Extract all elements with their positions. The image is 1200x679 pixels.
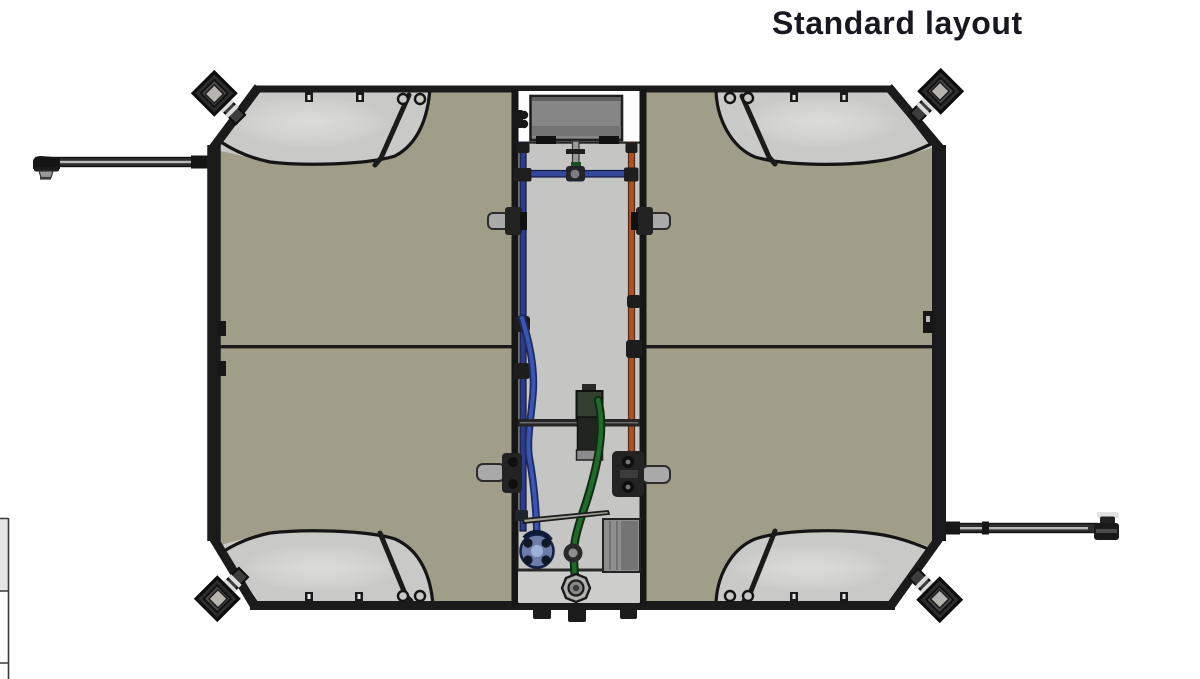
svg-text:Standard layout: Standard layout (772, 5, 1023, 41)
